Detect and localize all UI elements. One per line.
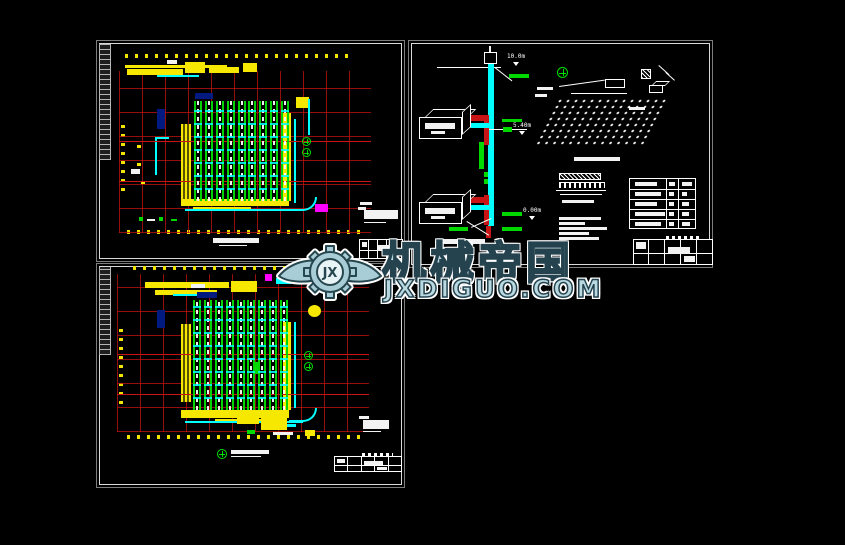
detail-teeth	[559, 182, 605, 188]
navy-area	[197, 292, 217, 298]
text-blob	[669, 182, 675, 186]
green-pipe	[503, 127, 512, 132]
text-blob	[635, 182, 657, 186]
rack-column	[215, 300, 223, 410]
green-pipe	[159, 217, 163, 221]
text-blob	[682, 222, 690, 226]
text-blob	[559, 222, 585, 225]
yellow-wall	[305, 430, 315, 436]
text-blob	[377, 467, 387, 471]
text-blob	[231, 450, 269, 454]
text-blob	[669, 202, 674, 206]
section-mark-symbol	[557, 67, 568, 78]
cyan-pipe	[185, 209, 303, 211]
rack-column	[227, 101, 235, 201]
text-blob	[635, 222, 661, 226]
text-blob	[219, 245, 247, 246]
green-pipe	[171, 219, 177, 221]
text-blob	[682, 212, 689, 216]
drawing-number-symbol	[217, 449, 227, 459]
table-line	[361, 457, 362, 471]
text-blob	[131, 169, 140, 174]
table-line	[664, 240, 665, 264]
table-line	[388, 457, 389, 471]
rack-column	[204, 300, 212, 410]
legend-table	[629, 178, 696, 229]
yellow-wall	[243, 63, 257, 72]
yellow-wall	[137, 163, 141, 166]
white-line	[559, 80, 605, 87]
table-line	[630, 189, 695, 190]
hatched-box	[559, 173, 601, 180]
rack-sprinkler-area	[194, 101, 289, 201]
yellow-wall	[209, 67, 239, 73]
elevation-label-top: 10.0m	[507, 54, 525, 60]
text-blob	[213, 238, 259, 243]
rack-column	[193, 300, 201, 410]
text-blob	[273, 432, 293, 435]
text-blob	[363, 431, 381, 432]
text-blob	[559, 217, 601, 220]
table-line	[347, 457, 348, 471]
cyan-pipe	[155, 137, 157, 175]
text-blob	[635, 202, 657, 206]
valve-symbol	[304, 362, 313, 371]
text-blob	[191, 284, 205, 288]
white-line	[571, 93, 627, 94]
drawing-number-dashes	[362, 453, 393, 456]
cyan-pipe	[157, 75, 199, 77]
text-blob	[574, 157, 620, 161]
table-line	[630, 199, 695, 200]
hatched-duct	[181, 124, 191, 199]
green-pipe	[139, 217, 143, 221]
watermark-brand-en: JXDIGUO.COM	[384, 275, 603, 303]
rack-column	[248, 101, 256, 201]
white-box	[484, 52, 497, 64]
green-pipe	[484, 179, 488, 184]
rack-column	[194, 101, 202, 201]
level-triangle-icon	[513, 62, 519, 69]
green-pipe	[502, 212, 522, 216]
green-pipe	[479, 142, 484, 169]
title-block	[633, 239, 713, 265]
navy-area	[195, 93, 213, 99]
cyan-pipe	[294, 322, 296, 408]
yellow-wall	[181, 410, 289, 418]
rack-column	[281, 101, 289, 201]
yellow-wall	[237, 414, 259, 424]
hatched-duct	[181, 324, 191, 402]
yellow-wall	[231, 281, 257, 292]
yellow-wall	[137, 145, 141, 148]
text-blob	[669, 192, 674, 196]
green-pipe	[484, 172, 488, 177]
text-blob	[363, 420, 389, 429]
white-line	[665, 72, 675, 81]
rack-column	[280, 300, 288, 410]
table-line	[648, 240, 649, 264]
text-blob	[669, 222, 674, 226]
text-blob	[537, 87, 553, 90]
level-triangle-icon	[519, 131, 525, 138]
dimension-ticks	[127, 435, 367, 439]
cyan-pipe	[308, 99, 310, 135]
cyan-pipe	[294, 119, 296, 203]
white-line	[556, 190, 606, 191]
text-blob	[635, 212, 665, 216]
text-blob	[360, 202, 372, 205]
magenta-highlight	[265, 274, 272, 281]
yellow-wall	[185, 62, 205, 73]
rack-column	[226, 300, 234, 410]
text-blob	[636, 242, 646, 249]
table-line	[666, 179, 667, 228]
text-blob	[535, 94, 547, 97]
elevation-label-mid: 5.40m	[513, 123, 531, 129]
text-blob	[489, 46, 491, 52]
white-box	[649, 85, 663, 93]
text-blob	[359, 416, 369, 419]
rack-column	[237, 300, 245, 410]
text-blob	[635, 192, 661, 196]
green-pipe	[247, 430, 255, 434]
yellow-wall	[145, 282, 229, 288]
table-line	[696, 240, 697, 264]
level-triangle-icon	[529, 216, 535, 223]
cyan-pipe	[155, 137, 169, 139]
rack-column	[205, 101, 213, 201]
cyan-pipe	[287, 424, 296, 427]
text-blob	[147, 219, 155, 221]
magenta-highlight	[315, 204, 328, 212]
rack-sprinkler-area	[193, 300, 288, 410]
text-blob	[425, 123, 455, 129]
title-block	[334, 456, 402, 472]
text-blob	[431, 216, 445, 219]
green-pipe	[509, 74, 529, 78]
elevation-label-ground: 0.00m	[523, 208, 541, 214]
white-box	[605, 79, 625, 88]
valve-symbol	[302, 137, 311, 146]
watermark: JX 机械帝国 JXDIGUO.COM	[276, 233, 592, 311]
yellow-wall	[261, 418, 287, 430]
text-blob	[167, 60, 177, 64]
text-blob	[682, 202, 689, 206]
text-blob	[682, 192, 687, 196]
text-blob	[337, 459, 345, 463]
text-blob	[669, 212, 674, 216]
rack-column	[216, 101, 224, 201]
text-blob	[425, 208, 455, 214]
text-blob	[364, 461, 383, 465]
table-line	[630, 209, 695, 210]
table-line	[630, 219, 695, 220]
text-blob	[231, 456, 261, 457]
text-blob	[684, 256, 695, 262]
navy-area	[157, 310, 165, 328]
rack-column	[247, 300, 255, 410]
text-blob	[431, 131, 445, 134]
watermark-gear-wings-icon: JX	[276, 233, 384, 311]
text-blob	[364, 222, 386, 223]
text-blob	[668, 247, 690, 254]
text-blob	[562, 200, 594, 203]
rack-column	[270, 101, 278, 201]
rack-column	[259, 101, 267, 201]
table-line	[678, 179, 679, 228]
dimension-ticks	[125, 54, 351, 58]
rack-column	[258, 300, 266, 410]
text-blob	[364, 210, 398, 219]
sheet-floor-plan-1	[96, 40, 405, 262]
rack-column	[269, 300, 277, 410]
text-blob	[682, 182, 692, 186]
rack-column	[238, 101, 246, 201]
valve-symbol	[304, 351, 313, 360]
valve-symbol	[302, 148, 311, 157]
hatched-box	[641, 69, 651, 79]
watermark-monogram: JX	[322, 266, 338, 281]
cad-canvas: 10.0m 5.40m 0.00m	[0, 0, 845, 545]
drawing-number-dashes	[666, 236, 702, 239]
navy-area	[157, 109, 165, 129]
white-line	[560, 194, 602, 195]
